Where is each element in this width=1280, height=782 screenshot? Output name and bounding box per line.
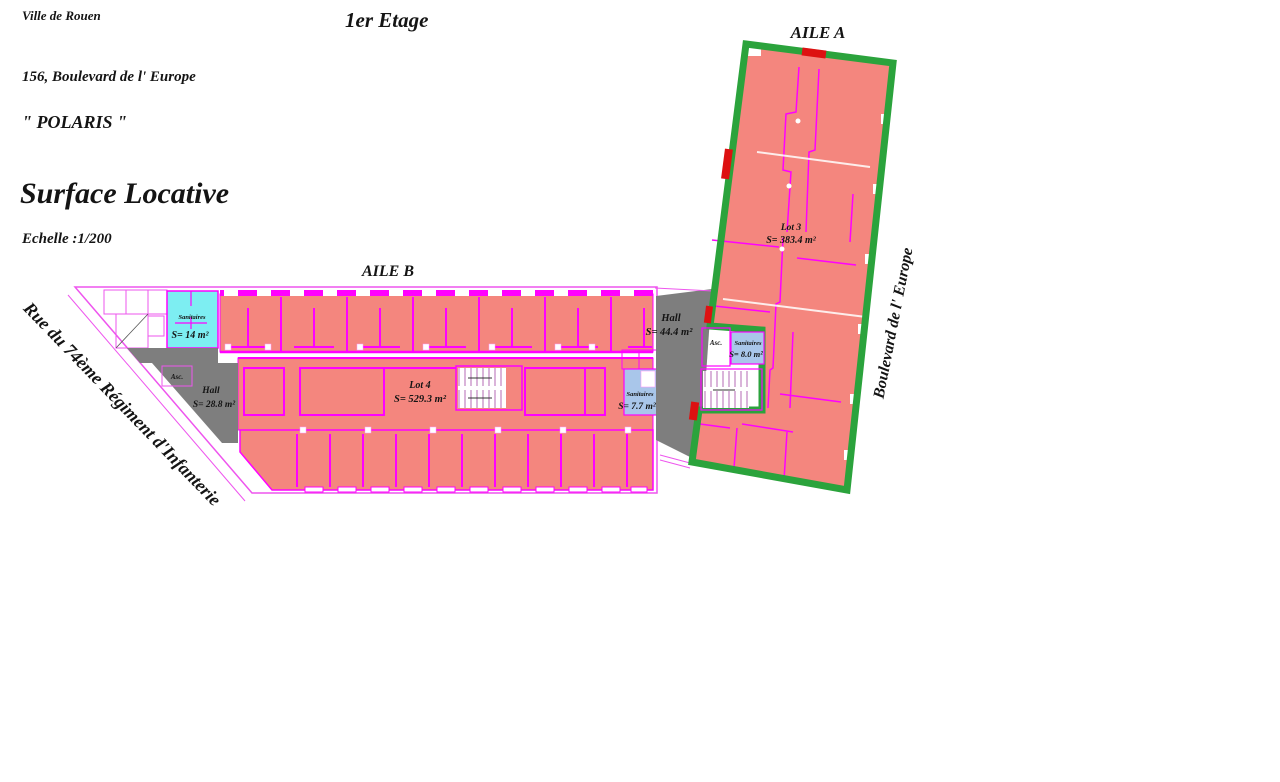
elevator-a-label: Asc. (709, 339, 723, 347)
floor-plan-page: { "document": { "city": "Ville de Rouen"… (0, 0, 1280, 782)
sanitaires-b-right-area: S= 7.7 m² (618, 402, 657, 412)
staircase-left (116, 314, 148, 348)
junction-notch: Asc. Sanitaires S= 8.0 m² (701, 328, 764, 410)
staircase-left-small (148, 316, 164, 336)
circulation-strip-gray (127, 348, 218, 363)
hall-junction-area: S= 44.4 m² (646, 327, 694, 338)
street-label-right: Boulevard de l' Europe (870, 246, 916, 401)
sanitaires-b-left: Sanitaires S= 14 m² (167, 291, 218, 348)
floor-title: 1er Etage (345, 8, 428, 32)
sanitaires-b-left-name: Sanitaires (178, 314, 206, 321)
sanitaires-b-right-name: Sanitaires (626, 391, 654, 398)
hall-b-area: S= 28.8 m² (193, 400, 236, 410)
aile-b-wing: AILE B (68, 263, 657, 501)
city-label: Ville de Rouen (22, 8, 101, 23)
junction-passage-line-2 (660, 460, 690, 468)
elevator-b-label: Asc. (170, 373, 184, 381)
aile-a-label: AILE A (790, 23, 846, 42)
hall-b-name: Hall (201, 386, 220, 396)
aile-a-floor (692, 44, 893, 490)
sanitaires-a-area: S= 8.0 m² (729, 349, 763, 359)
plan-title: Surface Locative (20, 177, 229, 210)
aile-a-wing: AILE A (689, 23, 893, 490)
building-name: " POLARIS " (22, 112, 127, 132)
hall-junction-name: Hall (660, 313, 680, 324)
lot3-area: S= 383.4 m² (766, 235, 817, 246)
scale-label: Echelle :1/200 (21, 231, 112, 247)
sanitaires-a-box (731, 332, 764, 364)
aile-b-bottom-band (240, 430, 653, 490)
sanitaires-b-left-area: S= 14 m² (171, 330, 209, 341)
sanitaires-a-name: Sanitaires (734, 340, 762, 347)
staircase-junction (701, 369, 762, 410)
lot4-area: S= 529.3 m² (394, 394, 447, 405)
lot4-name: Lot 4 (408, 380, 430, 391)
aile-b-facade-top (220, 290, 653, 296)
floor-plan-svg: Ville de Rouen 1er Etage 156, Boulevard … (0, 0, 1280, 782)
title-block: Ville de Rouen 1er Etage 156, Boulevard … (20, 8, 428, 247)
junction-passage-line-1 (660, 455, 690, 463)
aile-b-top-band (220, 294, 653, 352)
lot3-name: Lot 3 (780, 223, 802, 233)
aile-b-label: AILE B (361, 263, 414, 280)
address-label: 156, Boulevard de l' Europe (22, 69, 196, 85)
junction-top-line (655, 288, 713, 291)
